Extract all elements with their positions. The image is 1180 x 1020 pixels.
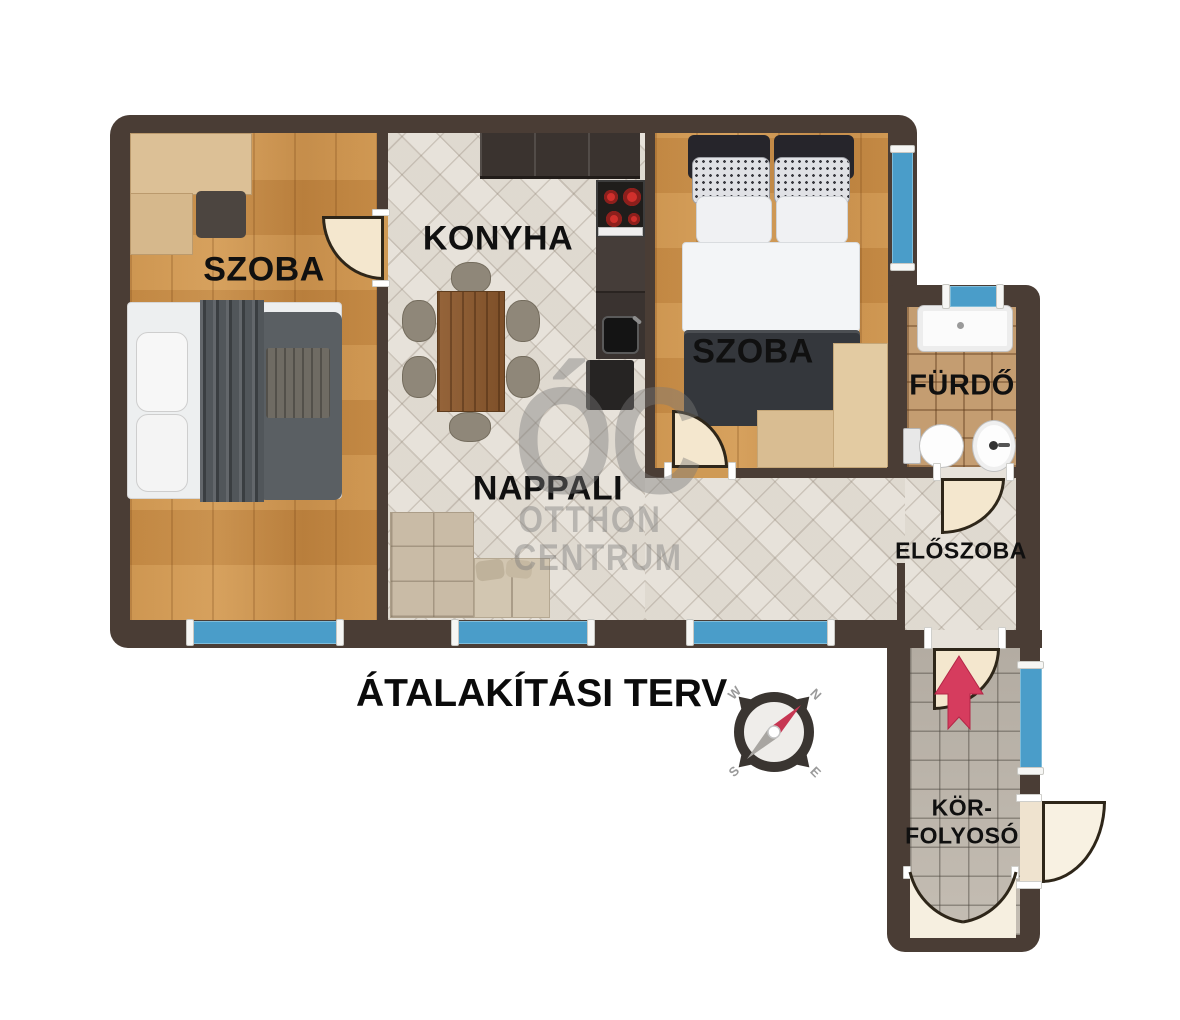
door-jamb [933, 463, 941, 481]
corner-desk [757, 410, 834, 468]
fridge [586, 360, 634, 410]
room-label-eloszoba: ELŐSZOBA [895, 538, 1027, 565]
bathtub [917, 305, 1013, 352]
door-jamb [664, 462, 672, 480]
livingroom-floor [645, 478, 905, 620]
sofa-back [390, 512, 474, 618]
dining-chair [449, 412, 491, 442]
entry-arrow-icon [932, 654, 986, 732]
compass-east: E [807, 764, 824, 781]
door-jamb [372, 280, 390, 287]
room-label-konyha: KONYHA [423, 220, 573, 259]
window-sill [1017, 661, 1044, 669]
sofa-cushion [475, 558, 506, 582]
dining-chair [402, 300, 436, 342]
window-sill [336, 619, 344, 646]
pillow [136, 414, 188, 492]
burner [604, 190, 618, 204]
bathtub-drain [957, 322, 964, 329]
corner-desk [130, 193, 193, 255]
room-label-szoba-right: SZOBA [692, 333, 814, 372]
kitchen-cabinets [480, 133, 640, 179]
window [458, 621, 588, 644]
wall-segment [1000, 630, 1042, 648]
door-jamb [372, 209, 390, 216]
door-jamb [1006, 463, 1014, 481]
corner-desk [130, 133, 252, 195]
page-title: ÁTALAKÍTÁSI TERV [356, 672, 727, 716]
room-label-korfolyoso-line1: KÖR- [905, 794, 1019, 822]
pillow [136, 332, 188, 412]
pillow [776, 196, 848, 244]
window-sill [890, 263, 915, 271]
faucet [998, 443, 1010, 447]
door-opening [930, 630, 1000, 648]
window-sill [827, 619, 835, 646]
window [1020, 668, 1042, 768]
window-sill [942, 284, 950, 309]
window [193, 621, 337, 644]
dining-table [437, 291, 505, 412]
window-sill [587, 619, 595, 646]
window-sill [890, 145, 915, 153]
room-label-szoba-left: SZOBA [203, 251, 325, 290]
door-jamb [1016, 794, 1042, 802]
door-jamb [728, 462, 736, 480]
wall-segment [377, 133, 388, 216]
window-sill [186, 619, 194, 646]
room-label-nappali: NAPPALI [473, 470, 623, 509]
wall-segment [645, 133, 655, 478]
window [693, 621, 828, 644]
window-sill [686, 619, 694, 646]
window-sill [996, 284, 1004, 309]
burner [628, 213, 640, 225]
window [950, 286, 997, 307]
dining-chair [506, 300, 540, 342]
wall-segment [897, 563, 905, 620]
room-label-furdo: FÜRDŐ [909, 370, 1015, 403]
door-opening [672, 468, 730, 478]
door-opening [1020, 801, 1042, 883]
pillow [696, 196, 772, 244]
cooktop-panel [598, 227, 643, 236]
door-corridor-side [1042, 801, 1106, 883]
desk-chair [196, 191, 246, 238]
dining-chair [402, 356, 436, 398]
faucet [989, 441, 998, 450]
dining-chair [451, 262, 491, 294]
double-door-corridor [903, 866, 1022, 942]
bed-runner-blanket [200, 300, 264, 502]
compass-icon: W N S E [722, 680, 826, 784]
kitchen-counter [596, 237, 645, 293]
toilet-bowl [919, 424, 964, 468]
window [892, 152, 913, 264]
room-label-korfolyoso-line2: FOLYOSÓ [905, 822, 1019, 850]
dining-chair [506, 356, 540, 398]
kitchen-sink [602, 316, 639, 354]
floor-plan: SZOBA KONYHA SZOBA FÜRDŐ NAPPALI ELŐSZOB… [0, 0, 1180, 1020]
burner [606, 211, 622, 227]
door-jamb [924, 627, 932, 649]
compass-north: N [807, 686, 824, 703]
wall-segment [377, 280, 388, 620]
door-jamb [998, 627, 1006, 649]
burner [623, 188, 641, 206]
sofa-cushion [505, 559, 533, 580]
folded-towel [266, 348, 330, 418]
window-sill [1017, 767, 1044, 775]
room-label-korfolyoso: KÖR- FOLYOSÓ [905, 794, 1019, 849]
window-sill [451, 619, 459, 646]
duvet [682, 242, 860, 332]
corner-desk [833, 343, 888, 468]
